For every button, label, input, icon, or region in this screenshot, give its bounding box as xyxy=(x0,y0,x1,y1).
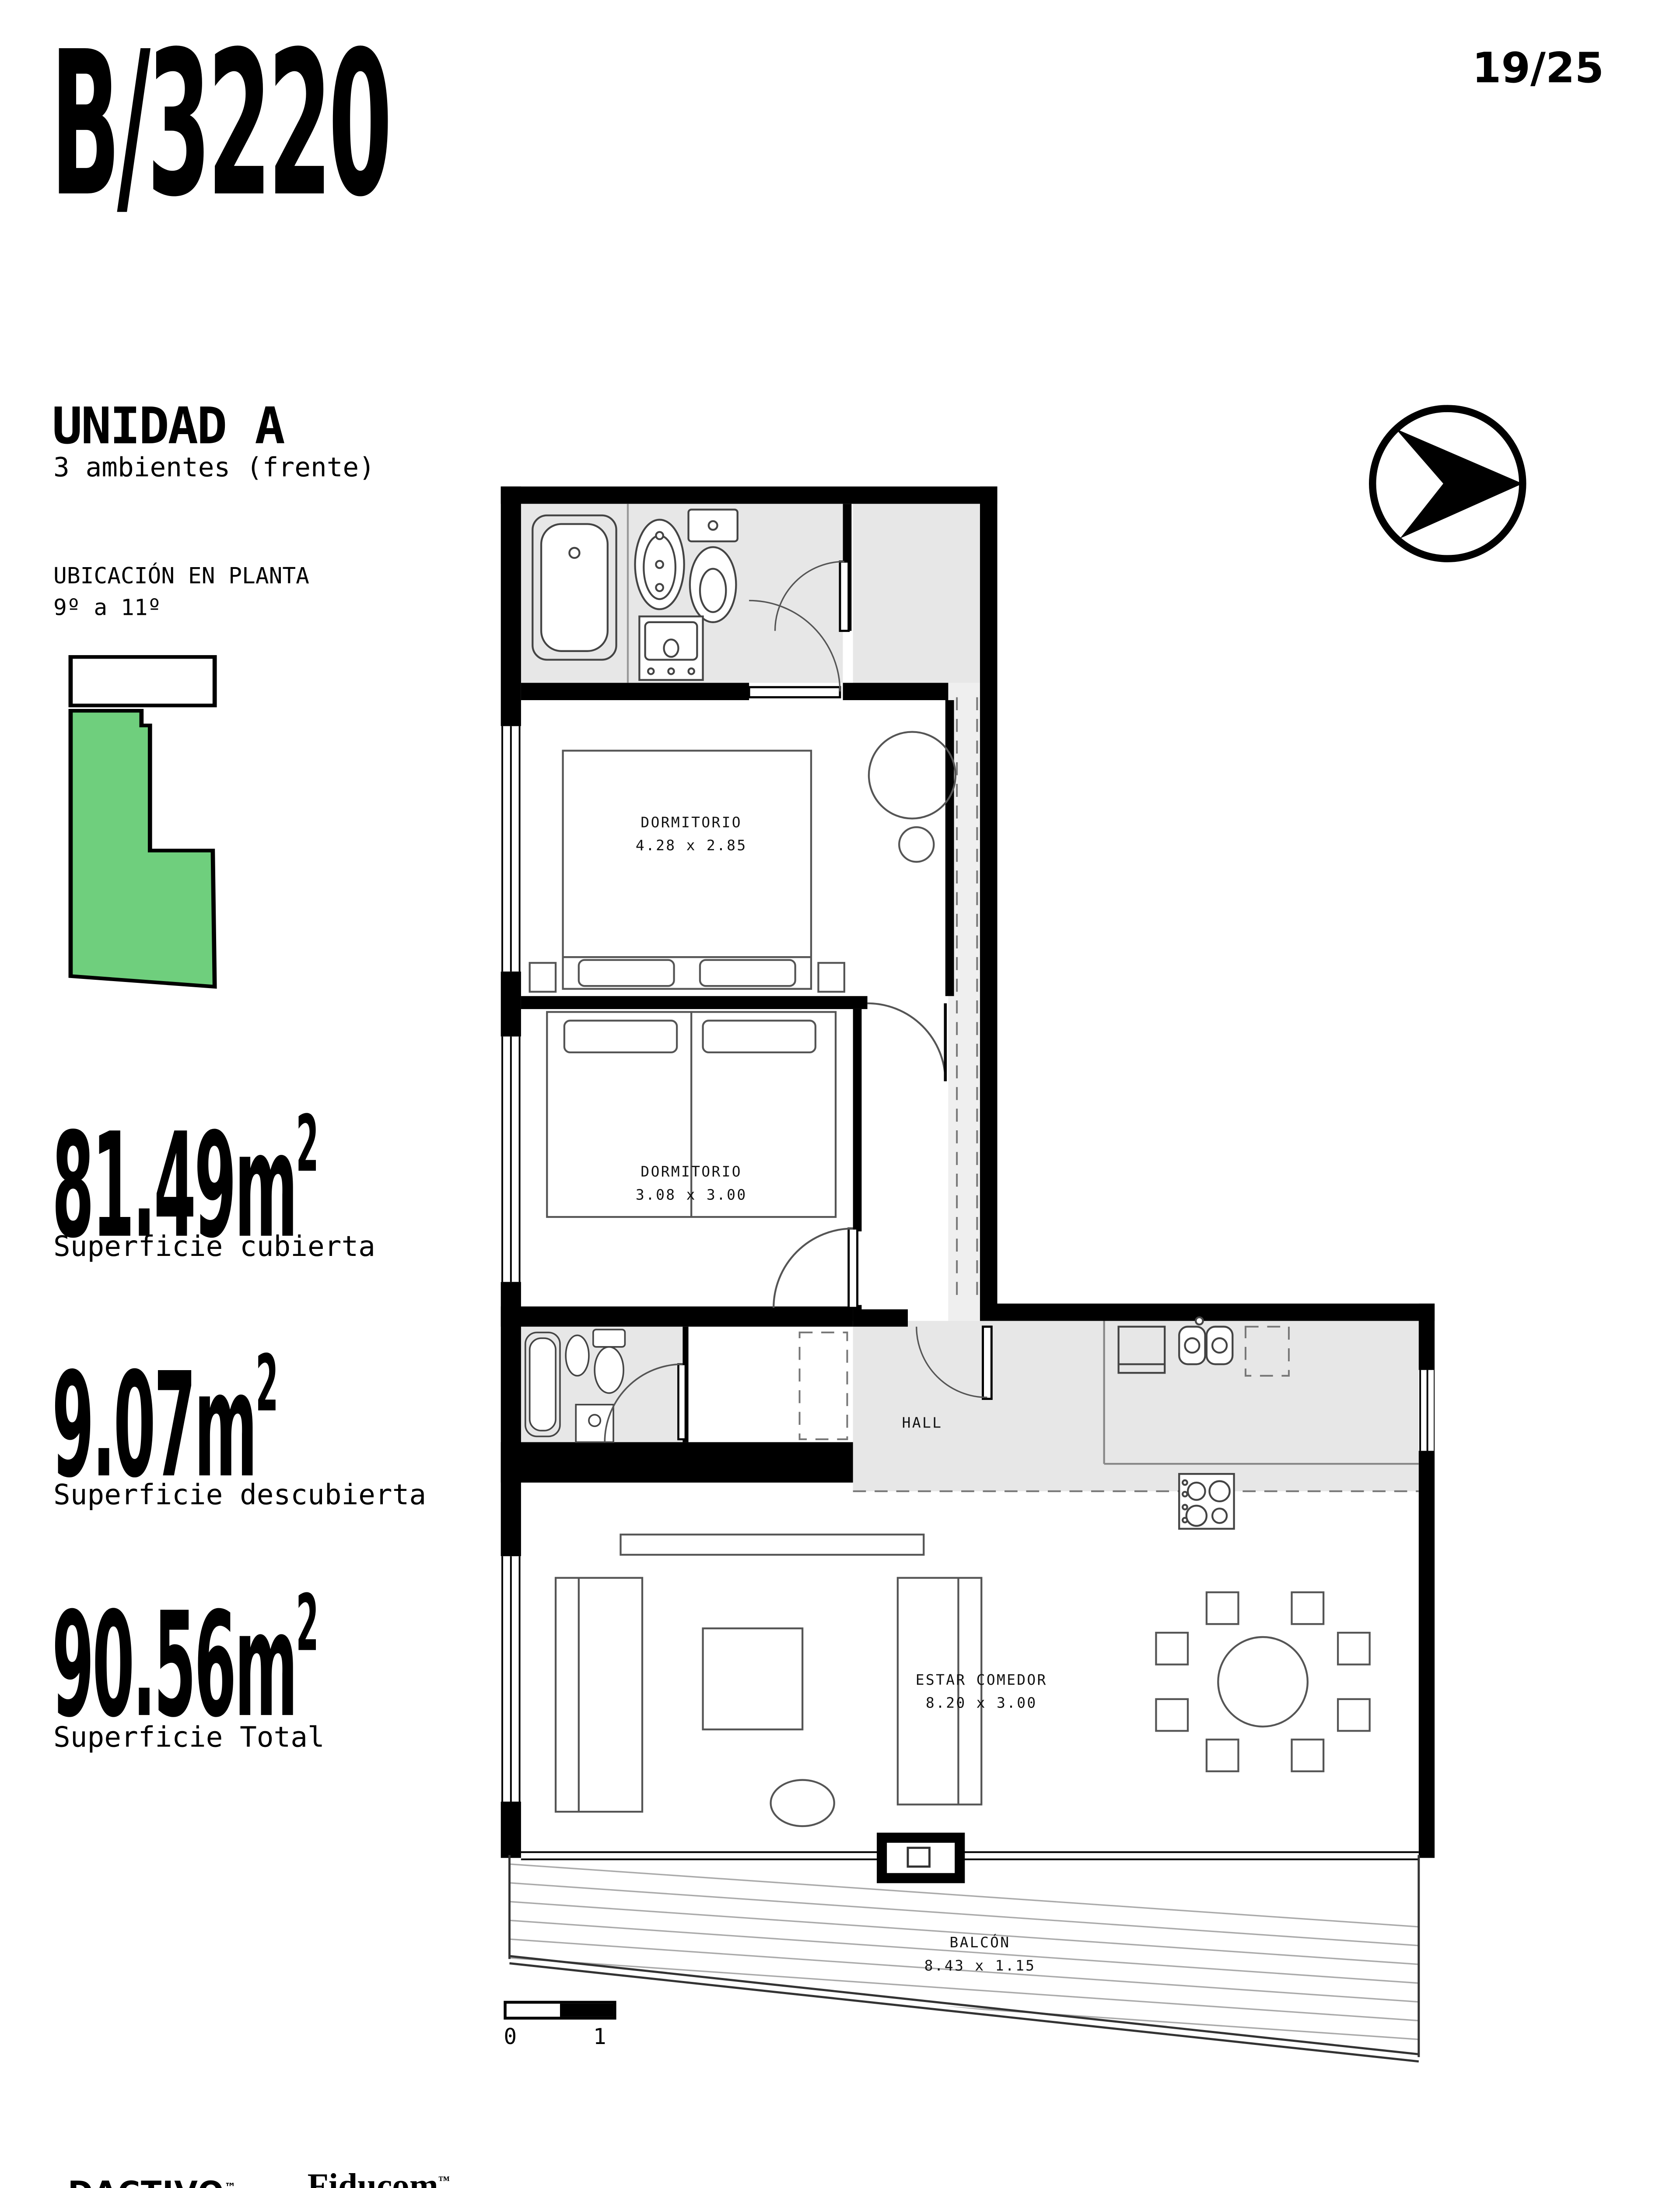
keyplan-unit-highlight xyxy=(70,711,214,987)
scale-start-label: 0 xyxy=(504,2024,517,2050)
trademark-icon: ™ xyxy=(224,2181,237,2188)
location-floors: 9º a 11º xyxy=(53,595,161,621)
bedroom-1-furniture xyxy=(530,732,955,1081)
room-label-living: ESTAR COMEDOR xyxy=(916,1671,1047,1688)
balcony-planter xyxy=(882,1837,960,1878)
unit-title: UNIDAD A xyxy=(52,398,284,456)
room-label-hall: HALL xyxy=(902,1414,943,1431)
area-uncovered-value: 9.07m2 xyxy=(52,1354,276,1498)
bedroom-2-furniture xyxy=(547,1012,857,1308)
page-number: 19/25 xyxy=(1472,43,1602,92)
trademark-icon: ™ xyxy=(438,2174,450,2187)
location-keyplan-icon xyxy=(65,650,220,996)
brand-fiducom: Fiducom™ xyxy=(308,2168,450,2188)
scale-end-label: 1 xyxy=(593,2024,606,2050)
area-uncovered-label: Superficie descubierta xyxy=(53,1478,426,1511)
area-covered-label: Superficie cubierta xyxy=(53,1230,375,1263)
floor-plan: DORMITORIO 4.28 x 2.85 DORMITORIO 3.08 x… xyxy=(489,481,1435,2127)
scale-bar xyxy=(504,2001,616,2020)
brand-dactivo: DACTIVO™ xyxy=(68,2175,237,2188)
scale-bar-black xyxy=(560,2004,613,2017)
room-dims-dorm1: 4.28 x 2.85 xyxy=(636,837,747,854)
project-logo: B/3220 xyxy=(50,26,388,225)
next-page-arrow-icon xyxy=(898,2186,1013,2188)
room-label-dorm2: DORMITORIO xyxy=(640,1163,742,1180)
scale-bar-white xyxy=(507,2004,560,2017)
unit-subtitle: 3 ambientes (frente) xyxy=(53,453,375,484)
area-total-label: Superficie Total xyxy=(53,1721,325,1754)
room-dims-dorm2: 3.08 x 3.00 xyxy=(636,1186,747,1203)
room-dims-living: 8.20 x 3.00 xyxy=(926,1694,1037,1711)
room-label-dorm1: DORMITORIO xyxy=(640,813,742,831)
room-label-balcony: BALCÓN xyxy=(950,1933,1011,1951)
plan-sheet: B/3220 19/25 UNIDAD A 3 ambientes (frent… xyxy=(0,0,1680,2188)
keyplan-other-unit xyxy=(70,657,214,705)
area-total-value: 90.56m2 xyxy=(52,1594,317,1738)
location-heading: UBICACIÓN EN PLANTA xyxy=(53,563,309,589)
room-dims-balcony: 8.43 x 1.15 xyxy=(924,1957,1036,1974)
